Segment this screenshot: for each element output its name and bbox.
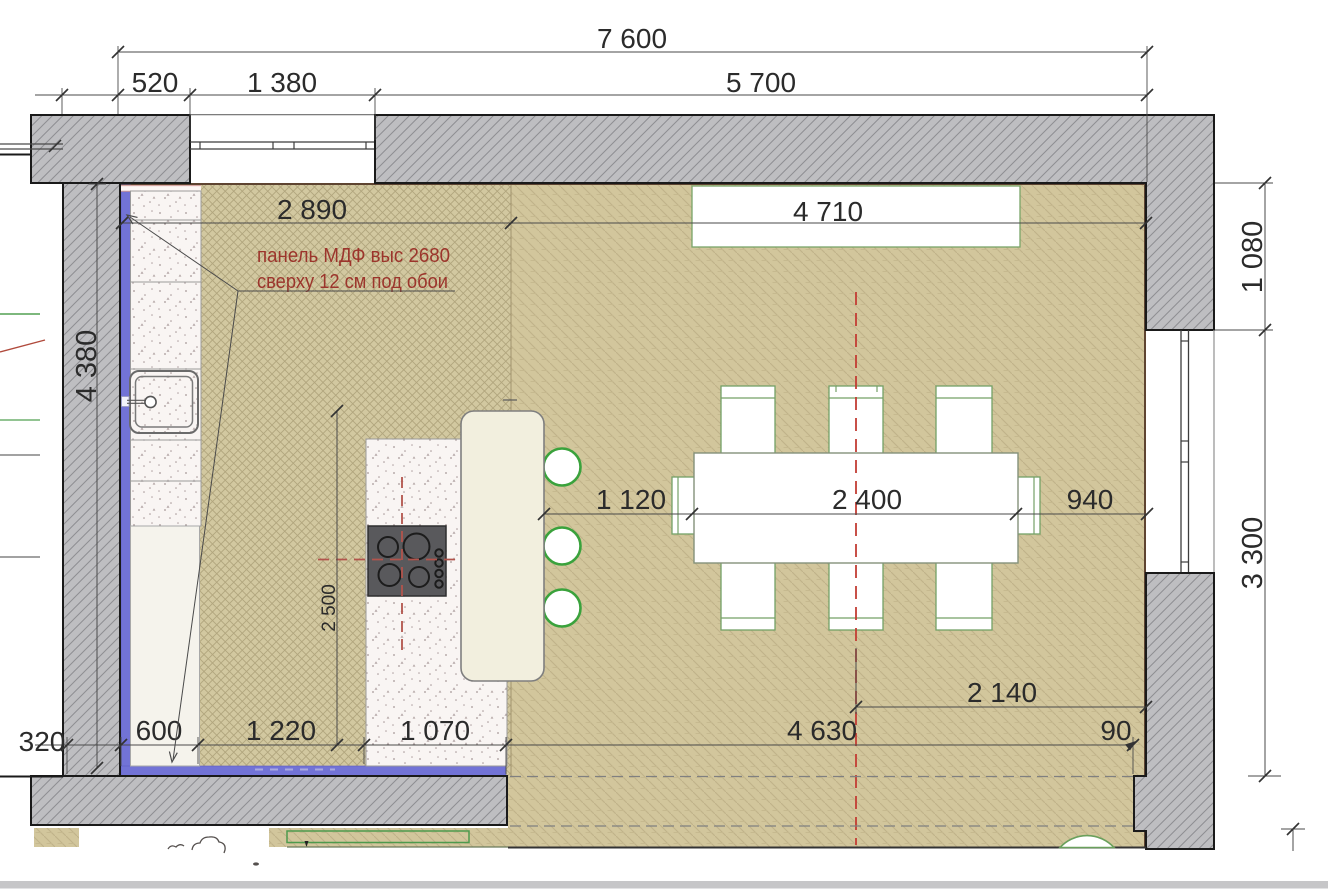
- svg-text:90: 90: [1100, 715, 1131, 746]
- svg-text:520: 520: [132, 67, 179, 98]
- svg-text:7 600: 7 600: [597, 23, 667, 54]
- svg-text:1 220: 1 220: [246, 715, 316, 746]
- svg-text:320: 320: [19, 726, 66, 757]
- svg-text:1 380: 1 380: [247, 67, 317, 98]
- svg-text:4 710: 4 710: [793, 196, 863, 227]
- svg-text:940: 940: [1067, 484, 1114, 515]
- svg-text:1 070: 1 070: [400, 715, 470, 746]
- svg-text:панель МДФ выс 2680: панель МДФ выс 2680: [257, 245, 450, 267]
- svg-text:1 080: 1 080: [1237, 221, 1269, 294]
- svg-text:2 140: 2 140: [967, 677, 1037, 708]
- svg-text:2 500: 2 500: [319, 584, 340, 632]
- svg-text:3 300: 3 300: [1237, 517, 1269, 590]
- svg-text:сверху 12 см под обои: сверху 12 см под обои: [257, 271, 448, 293]
- svg-text:2 890: 2 890: [277, 194, 347, 225]
- svg-text:4 630: 4 630: [787, 715, 857, 746]
- svg-text:2 400: 2 400: [832, 484, 902, 515]
- svg-text:4 380: 4 380: [71, 330, 103, 403]
- svg-text:1 120: 1 120: [596, 484, 666, 515]
- svg-text:5 700: 5 700: [726, 67, 796, 98]
